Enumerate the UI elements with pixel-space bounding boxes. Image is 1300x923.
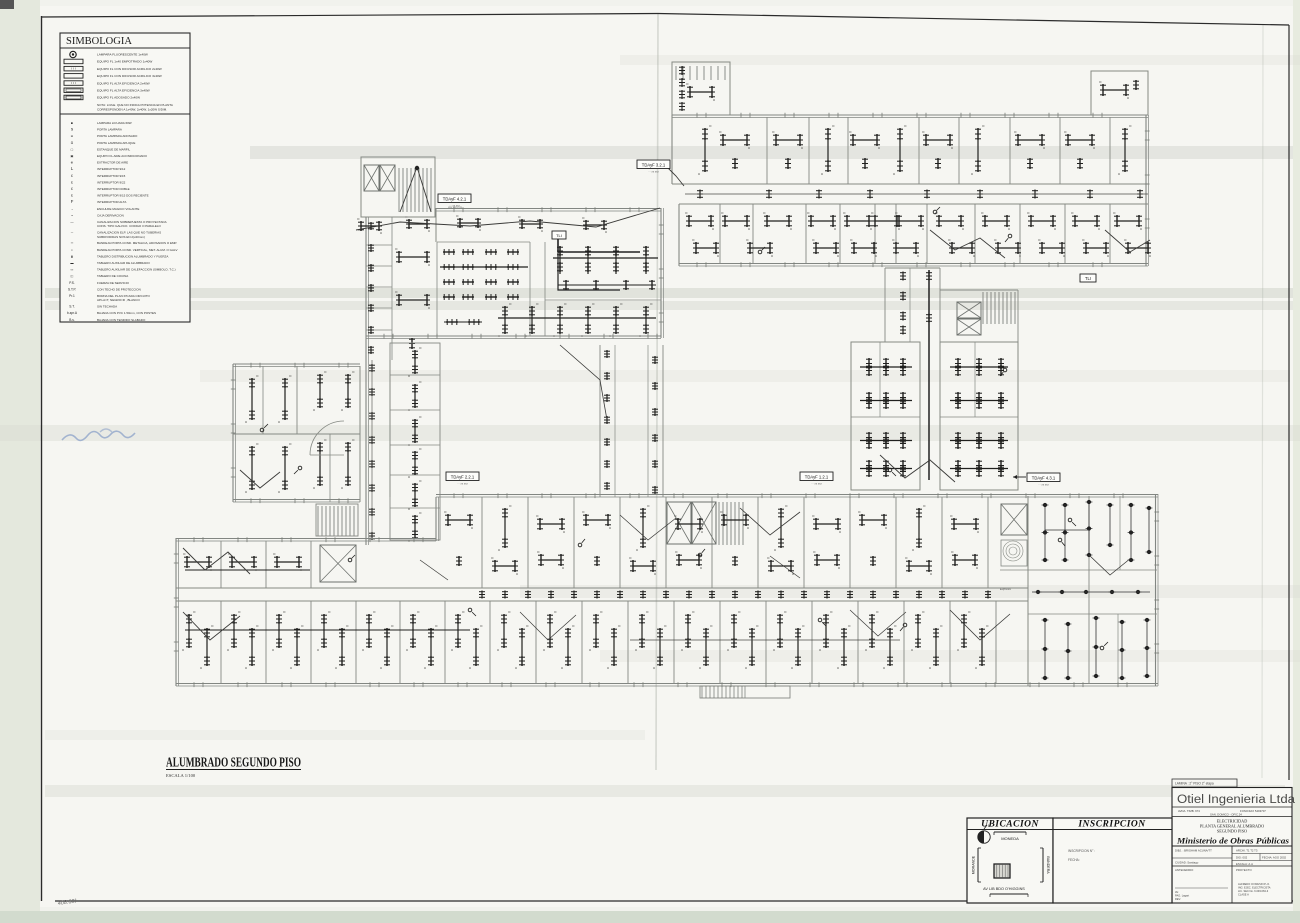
svg-text:FECHA:: FECHA: [1068,858,1080,862]
svg-text:··· xx xxx: ··· xx xxx [811,483,822,486]
svg-text:ANTECEDIDO: ANTECEDIDO [1175,868,1194,872]
svg-text:BAJADA CON TENDIDO SLABADO: BAJADA CON TENDIDO SLABADO [97,318,146,322]
svg-text:▢: ▢ [70,147,73,151]
svg-text:INTERRUPTOR 9/12: INTERRUPTOR 9/12 [97,167,126,171]
svg-text:SUBDIVIDIDAS NOS EN 2(x20mm): SUBDIVIDIDAS NOS EN 2(x20mm) [97,235,145,239]
svg-text:CAJA DERIVACION: CAJA DERIVACION [97,213,124,217]
svg-text:AV.: AV. [1175,890,1179,894]
svg-text:LIC. SEC No. 6.093.063-3: LIC. SEC No. 6.093.063-3 [1238,889,1269,893]
svg-text:Otiel Ingenieria Ltda: Otiel Ingenieria Ltda [1177,794,1296,806]
svg-text:EQUIPO FL AIRE ACONDICIONADO: EQUIPO FL AIRE ACONDICIONADO [97,154,148,158]
svg-text:LAMPARA FLUORESCENTE 1x40W: LAMPARA FLUORESCENTE 1x40W [97,53,148,57]
svg-text:PORTA LAMPARA ADOSADO: PORTA LAMPARA ADOSADO [97,134,138,138]
svg-text:AV LIB BDO O’HIGGINS: AV LIB BDO O’HIGGINS [983,887,1025,891]
svg-text:··· xx xxx: ··· xx xxx [1038,484,1049,487]
svg-text:INTERRUPTOR 9/15 DOS RECIENTE: INTERRUPTOR 9/15 DOS RECIENTE [97,194,149,198]
svg-text:FECHA: AGO 2002: FECHA: AGO 2002 [1262,856,1287,860]
svg-text:ALFREDO OYARZUN P.-O.: ALFREDO OYARZUN P.-O. [1238,882,1270,886]
svg-text:TDAyF 4.3.1: TDAyF 4.3.1 [1032,475,1056,480]
svg-text:AVDA. TIMB. 974: AVDA. TIMB. 974 [1178,809,1200,813]
svg-text:£: £ [71,180,73,184]
svg-text:Ministerio de Obras Públicas: Ministerio de Obras Públicas [1176,836,1290,846]
svg-text:■: ■ [71,121,73,125]
svg-text:PORTA LAMPARA: PORTA LAMPARA [97,128,122,132]
svg-text:CLASE A: CLASE A [1238,893,1249,897]
svg-text:BANDEJA PORTA COND. METALICA,: BANDEJA PORTA COND. METALICA, ADOSADOS O… [97,241,177,245]
svg-text:▭: ▭ [70,268,73,272]
svg-text:I I I: I I I [71,81,75,85]
svg-text:MONEDA: MONEDA [1001,836,1019,841]
svg-text:DIBJ. : BRIGHAM ACUNA/TT: DIBJ. : BRIGHAM ACUNA/TT [1175,849,1212,853]
svg-text:BANDERA: BANDERA [1046,856,1050,874]
svg-text:PAG. Lagart: PAG. Lagart [1175,894,1189,898]
svg-text:▮: ▮ [71,254,73,258]
svg-text:INTERRUPTOR DOBLE: INTERRUPTOR DOBLE [97,187,130,191]
svg-text:TABLERO DISTRIBUCION ALUMBRADO: TABLERO DISTRIBUCION ALUMBRADO Y FUERZA [97,254,168,258]
svg-text:INTERRUPTOR 9/15: INTERRUPTOR 9/15 [97,174,126,178]
svg-text:TABLERO AUXILIAR DE CALEFACCIO: TABLERO AUXILIAR DE CALEFACCION (SIMBOLO… [97,268,176,272]
svg-text:TDAyF 2.2.1: TDAyF 2.2.1 [451,474,475,479]
svg-text:BAJADA CON PVC 1.50mm, CON POS: BAJADA CON PVC 1.50mm, CON POSTES [97,311,156,315]
svg-text:CON TECHO DE PROTECCION: CON TECHO DE PROTECCION [97,287,141,291]
svg-text:PORTA LAMPARA APLIQUE: PORTA LAMPARA APLIQUE [97,141,135,145]
svg-text:ING. EJEC. ELECTRICISTA: ING. EJEC. ELECTRICISTA [1238,886,1271,890]
svg-text:FONO/FAX 5493707: FONO/FAX 5493707 [1240,809,1266,813]
svg-text:INSCRIPCION N° :: INSCRIPCION N° : [1068,849,1095,853]
svg-text:£: £ [71,187,73,191]
svg-text:PROYECTO: PROYECTO [1236,868,1252,872]
svg-text:INTERRUPTOR 9/22: INTERRUPTOR 9/22 [97,180,126,184]
svg-text:ALUMBRADO SEGUNDO PISO: ALUMBRADO SEGUNDO PISO [166,755,301,770]
svg-text:REV.: REV. [1175,897,1181,901]
svg-text:INSCRIPCION: INSCRIPCION [1077,820,1146,830]
svg-text:INTERRUPTOR ALTA: INTERRUPTOR ALTA [97,200,126,204]
svg-text:TLI: TLI [1085,276,1091,281]
svg-text:AP.LA=T, NEGRO=R , BLANCO: AP.LA=T, NEGRO=R , BLANCO [97,298,140,302]
svg-text:SAN. DOMICO - OFIC.24: SAN. DOMICO - OFIC.24 [1210,813,1242,817]
svg-text:Pr.1: Pr.1 [69,294,75,298]
svg-text:b-spr.A: b-spr.A [67,311,78,315]
svg-text:BANDEJA PORTA COND. VERTICAL,: BANDEJA PORTA COND. VERTICAL, MET. ALUM.… [97,248,177,252]
svg-text:MORANDE: MORANDE [972,855,976,874]
svg-text:SEGUNDO PISO: SEGUNDO PISO [1217,829,1247,834]
svg-text:EQUIPO FL CON DIFUSOR ACRILICO: EQUIPO FL CON DIFUSOR ACRILICO 2x40W [97,67,162,71]
svg-text:Express: Express [1000,587,1011,591]
svg-text:SIMBOLOGIA: SIMBOLOGIA [66,36,132,47]
svg-text:LAMPARA LICUADA 60W: LAMPARA LICUADA 60W [97,121,132,125]
svg-text:ESTANQUE DE MARFIL: ESTANQUE DE MARFIL [97,147,130,151]
svg-text:EQUIPO FL CON DIFUSOR ACRILICO: EQUIPO FL CON DIFUSOR ACRILICO 3x40W [97,74,162,78]
svg-text:EQUIPO FL ALTA EFICIENCIA 2x40: EQUIPO FL ALTA EFICIENCIA 2x40W [97,81,150,85]
svg-text:P.S.: P.S. [69,281,75,285]
svg-text:◫: ◫ [70,274,73,278]
svg-text:TLI: TLI [556,233,562,238]
svg-text:TDAyF 4.2.1: TDAyF 4.2.1 [443,196,467,201]
svg-text:TDAyF 1.2.1: TDAyF 1.2.1 [805,474,829,479]
svg-text:S.T.: S.T. [69,305,75,309]
svg-text:I I I: I I I [71,67,75,71]
svg-text:•: • [71,213,72,217]
svg-text:xxx xxx x xx: xxx xxx x xx [448,206,463,209]
svg-text:ARCHI. T1 T2 T3: ARCHI. T1 T2 T3 [1236,849,1258,853]
svg-text:ESCALA: A.A: ESCALA: A.A [1236,862,1253,866]
svg-text:CORRESPONDEN A 1x40W, 2x40W, 1: CORRESPONDEN A 1x40W, 2x40W, 1x20W S/DIM… [97,108,167,112]
svg-text:TABLERO AUXILIAR DE ALUMBRADO: TABLERO AUXILIAR DE ALUMBRADO [97,261,150,265]
svg-text:EXTRACTOR DE AIRE: EXTRACTOR DE AIRE [97,161,128,165]
svg-text:→: → [70,207,73,211]
svg-text:£: £ [71,194,73,198]
svg-text:NOTA: LO/LE. QUE NO INDICA POT: NOTA: LO/LE. QUE NO INDICA POTENCIA EN P… [97,103,173,107]
svg-text:CIUDAD: Santiago: CIUDAD: Santiago [1175,861,1199,865]
svg-text:S.T.P.: S.T.P. [68,287,76,291]
svg-text:EQUIPO FL ADOSADO 2x40W: EQUIPO FL ADOSADO 2x40W [97,96,140,100]
svg-text:ENCHUFE MAGICO VOLANTE: ENCHUFE MAGICO VOLANTE [97,207,139,211]
svg-text:TDAyF 3.2.1: TDAyF 3.2.1 [642,162,666,167]
svg-text:FUERZA DE SERVICIO: FUERZA DE SERVICIO [97,281,130,285]
svg-text:SIN TECHADA: SIN TECHADA [97,305,117,309]
svg-text:··· xx xxx: ··· xx xxx [457,483,468,486]
svg-text:CONS. TIPO GALVCO. CODIGO O PA: CONS. TIPO GALVCO. CODIGO O PARALELO [97,224,162,228]
svg-text:··· xx xxx: ··· xx xxx [648,171,659,174]
svg-text:DIG: 002: DIG: 002 [1236,856,1248,860]
svg-text:TABLERO DE COCINA: TABLERO DE COCINA [97,274,128,278]
svg-text:EQUIPO FL 1x40 EMPOTRADO 1x40W: EQUIPO FL 1x40 EMPOTRADO 1x40W [97,60,152,64]
svg-text:LAMINA : 2° PISO 2° etapa: LAMINA : 2° PISO 2° etapa [1175,782,1214,786]
svg-text:s: s [71,127,73,132]
svg-text:▣: ▣ [70,154,73,158]
svg-text:EQUIPO FL ALTA EFICIENCIA 3x40: EQUIPO FL ALTA EFICIENCIA 3x40W [97,89,150,93]
svg-text:ESCALA 1/100: ESCALA 1/100 [166,773,196,778]
svg-text:⊕: ⊕ [71,161,74,165]
svg-text:▪: ▪ [71,248,72,252]
svg-text:⊖: ⊖ [71,134,74,138]
svg-text:B.s.: B.s. [69,318,75,322]
svg-text:F: F [71,199,74,204]
svg-text:£: £ [71,174,73,178]
